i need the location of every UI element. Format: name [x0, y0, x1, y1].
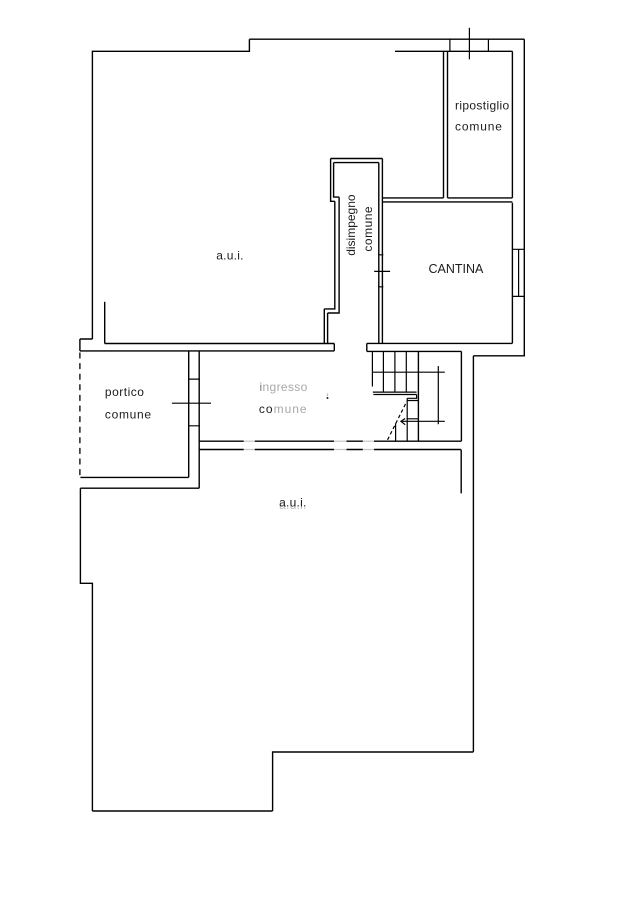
- svg-text:ripostiglio: ripostiglio: [455, 99, 510, 113]
- svg-text:disimpegno: disimpegno: [344, 194, 358, 256]
- svg-text:a.u.i.: a.u.i.: [279, 496, 307, 510]
- svg-text:CANTINA: CANTINA: [429, 262, 485, 276]
- svg-text:comune: comune: [455, 120, 503, 134]
- svg-text:comune: comune: [361, 206, 375, 252]
- svg-text:comune: comune: [259, 402, 308, 416]
- svg-text:portico: portico: [105, 385, 145, 399]
- svg-text:comune: comune: [105, 407, 152, 421]
- svg-text:ingresso: ingresso: [260, 380, 308, 394]
- svg-text:a.u.i.: a.u.i.: [216, 249, 244, 263]
